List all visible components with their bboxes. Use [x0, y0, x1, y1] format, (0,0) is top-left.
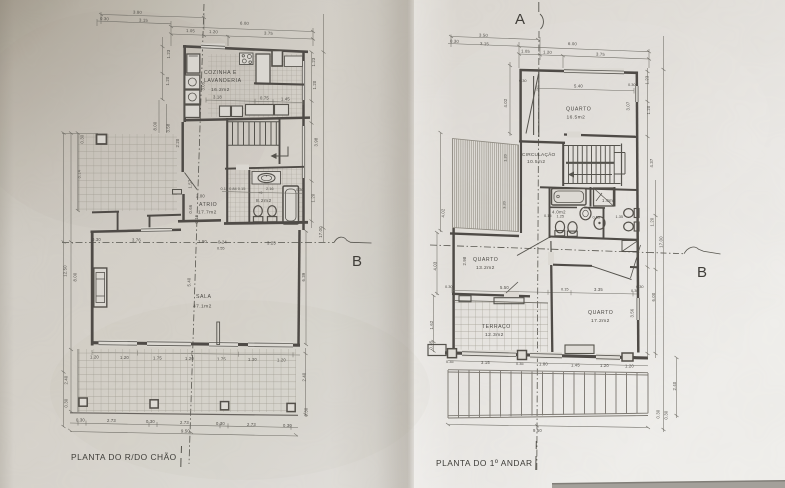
svg-text:PLANTA DO R/DO CHÃO: PLANTA DO R/DO CHÃO [71, 452, 177, 462]
svg-text:TERRAÇO: TERRAÇO [482, 324, 511, 330]
svg-text:6.00: 6.00 [240, 21, 250, 26]
svg-text:3.15: 3.15 [139, 18, 149, 23]
svg-text:4.02: 4.02 [503, 98, 508, 107]
svg-text:3.80: 3.80 [133, 10, 143, 15]
svg-text:1.20: 1.20 [625, 364, 634, 369]
svg-text:1.20: 1.20 [650, 217, 655, 226]
svg-text:47.1m2: 47.1m2 [193, 304, 212, 310]
svg-text:2.73: 2.73 [180, 420, 189, 425]
svg-text:4.02: 4.02 [441, 208, 446, 217]
svg-text:1.20: 1.20 [503, 153, 508, 161]
svg-text:17.00: 17.00 [659, 236, 664, 248]
svg-text:B: B [697, 264, 707, 281]
svg-text:0.24: 0.24 [218, 240, 227, 245]
svg-text:3.05: 3.05 [201, 81, 206, 90]
svg-text:5.50: 5.50 [500, 285, 509, 290]
svg-text:3.07: 3.07 [626, 101, 631, 110]
svg-text:1.20: 1.20 [600, 363, 609, 368]
svg-text:0.35: 0.35 [516, 361, 524, 366]
svg-text:QUARTO: QUARTO [588, 310, 613, 316]
svg-text:2.20: 2.20 [175, 138, 180, 147]
svg-text:0.55: 0.55 [217, 246, 225, 251]
svg-text:2.73: 2.73 [247, 422, 256, 427]
svg-text:QUARTO: QUARTO [566, 107, 591, 113]
svg-text:QUARTO: QUARTO [473, 257, 498, 263]
svg-text:10.5m2: 10.5m2 [527, 159, 545, 165]
svg-text:1.23: 1.23 [645, 75, 650, 84]
svg-text:1.80: 1.80 [539, 361, 548, 366]
svg-text:0.30: 0.30 [628, 82, 636, 87]
svg-text:16.2m2: 16.2m2 [211, 87, 230, 93]
svg-text:4.37: 4.37 [649, 158, 654, 167]
svg-text:1.62: 1.62 [429, 320, 434, 329]
svg-text:0.75: 0.75 [260, 96, 269, 101]
svg-text:3.58: 3.58 [166, 123, 171, 132]
svg-text:0.30: 0.30 [664, 410, 669, 419]
svg-text:8.00: 8.00 [153, 121, 158, 130]
svg-text:6.39: 6.39 [301, 272, 306, 281]
svg-text:3.98: 3.98 [314, 137, 319, 146]
svg-text:16.5m2: 16.5m2 [567, 115, 586, 121]
svg-text:17.2m2: 17.2m2 [591, 318, 610, 324]
svg-text:0.15: 0.15 [561, 287, 569, 292]
svg-text:1.23: 1.23 [166, 49, 171, 58]
svg-text:0.30: 0.30 [304, 407, 309, 416]
svg-text:1.25: 1.25 [557, 213, 565, 218]
svg-text:0.30: 0.30 [283, 423, 292, 428]
svg-text:1.20: 1.20 [312, 80, 317, 89]
svg-text:2.98: 2.98 [462, 256, 467, 265]
svg-text:0.30: 0.30 [100, 16, 110, 21]
svg-text:8.00: 8.00 [73, 272, 78, 281]
svg-text:1.90: 1.90 [198, 239, 207, 244]
svg-text:1.45: 1.45 [281, 97, 290, 102]
svg-text:2.00: 2.00 [196, 194, 205, 199]
svg-text:3.75: 3.75 [264, 31, 274, 36]
svg-text:17.00: 17.00 [318, 226, 323, 238]
svg-text:4.03: 4.03 [433, 261, 438, 270]
svg-text:PLANTA DO 1º ANDAR: PLANTA DO 1º ANDAR [436, 458, 533, 468]
svg-text:B: B [352, 253, 362, 270]
svg-text:17.7m2: 17.7m2 [198, 210, 217, 216]
svg-text:2.40: 2.40 [302, 372, 307, 381]
svg-text:2.40: 2.40 [64, 375, 69, 384]
svg-text:1.20: 1.20 [209, 29, 219, 34]
svg-text:6.00: 6.00 [651, 292, 656, 301]
svg-text:3.76: 3.76 [132, 238, 141, 243]
svg-text:0.55: 0.55 [593, 215, 601, 220]
svg-text:9.50: 9.50 [181, 429, 190, 434]
svg-text:12.50: 12.50 [63, 265, 68, 277]
svg-text:9.50: 9.50 [533, 428, 542, 433]
svg-text:1.20: 1.20 [543, 50, 553, 55]
svg-text:1.45: 1.45 [571, 362, 580, 367]
svg-text:0.15: 0.15 [544, 213, 552, 218]
svg-text:3.25: 3.25 [267, 241, 276, 246]
svg-text:3.20: 3.20 [502, 200, 507, 208]
svg-text:0.30: 0.30 [636, 284, 644, 289]
svg-text:1.05: 1.05 [521, 49, 531, 54]
svg-text:5.40: 5.40 [574, 84, 583, 89]
svg-text:8.2m2: 8.2m2 [256, 198, 272, 204]
svg-text:1.05: 1.05 [186, 28, 196, 33]
svg-text:3.15: 3.15 [481, 360, 490, 365]
svg-text:5.40: 5.40 [187, 277, 192, 286]
svg-text:1.35: 1.35 [616, 214, 624, 219]
svg-text:LAVANDERIA: LAVANDERIA [204, 78, 242, 84]
svg-text:A: A [515, 11, 525, 28]
svg-text:0.66: 0.66 [188, 204, 193, 213]
svg-text:0.30: 0.30 [656, 409, 661, 418]
svg-text:3.50: 3.50 [479, 33, 489, 38]
svg-text:0.30: 0.30 [64, 398, 69, 407]
svg-text:13.2m2: 13.2m2 [476, 265, 495, 271]
svg-text:0.35: 0.35 [446, 359, 454, 364]
svg-text:1.20: 1.20 [311, 193, 316, 202]
svg-text:0.30: 0.30 [450, 39, 460, 44]
svg-text:3.35: 3.35 [594, 287, 603, 292]
svg-text:12.3m2: 12.3m2 [485, 332, 504, 338]
svg-text:0.30: 0.30 [76, 418, 85, 423]
svg-text:0.30: 0.30 [296, 187, 304, 192]
svg-text:2.16: 2.16 [266, 186, 274, 191]
svg-text:2.73: 2.73 [107, 418, 116, 423]
svg-text:2.40: 2.40 [672, 381, 677, 390]
svg-text:1.0m2: 1.0m2 [602, 198, 616, 203]
svg-text:3.56: 3.56 [630, 308, 635, 317]
svg-text:6.00: 6.00 [568, 41, 578, 46]
svg-text:SALA: SALA [196, 294, 211, 300]
svg-text:ATRIO: ATRIO [199, 202, 217, 208]
svg-text:0.15 0.84 0.15: 0.15 0.84 0.15 [221, 186, 246, 191]
svg-text:0.30: 0.30 [146, 419, 155, 424]
svg-text:COZINHA E: COZINHA E [204, 70, 237, 76]
svg-text:0.30: 0.30 [519, 78, 527, 83]
svg-text:1.23: 1.23 [311, 57, 316, 66]
svg-text:1.20: 1.20 [165, 76, 170, 85]
svg-text:3.75: 3.75 [596, 52, 606, 57]
svg-text:3.18: 3.18 [213, 95, 222, 100]
svg-text:CIRCULAÇÃO: CIRCULAÇÃO [522, 151, 556, 158]
svg-text:1.20: 1.20 [646, 105, 651, 114]
svg-text:0.30: 0.30 [92, 237, 101, 242]
svg-text:0.30: 0.30 [216, 421, 225, 426]
svg-text:3.15: 3.15 [480, 41, 490, 46]
